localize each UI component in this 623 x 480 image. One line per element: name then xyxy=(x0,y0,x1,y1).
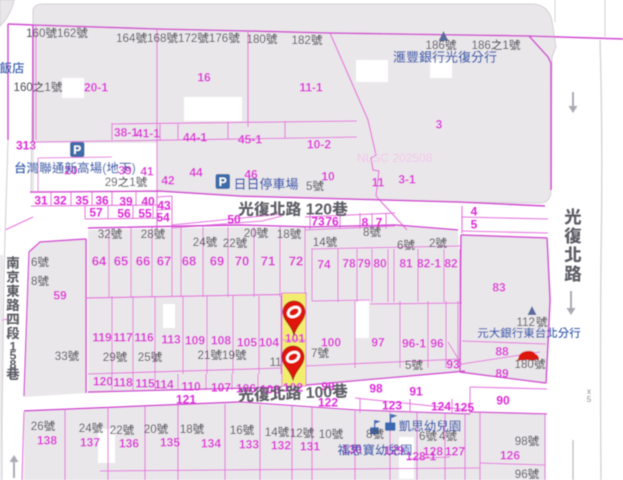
svg-text:96: 96 xyxy=(515,468,528,480)
svg-text:180: 180 xyxy=(515,358,534,371)
svg-text:90: 90 xyxy=(496,393,510,407)
svg-text:79: 79 xyxy=(357,256,371,270)
svg-text:32: 32 xyxy=(98,228,111,241)
svg-text:3: 3 xyxy=(436,117,443,131)
svg-text:91: 91 xyxy=(409,384,423,398)
svg-text:119: 119 xyxy=(92,330,112,344)
svg-text:11: 11 xyxy=(372,175,385,189)
svg-text:186: 186 xyxy=(472,39,491,52)
svg-text:100: 100 xyxy=(305,384,332,402)
svg-text:14: 14 xyxy=(265,426,278,439)
svg-text:162: 162 xyxy=(57,27,76,40)
svg-text:59: 59 xyxy=(53,288,67,302)
svg-text:56: 56 xyxy=(117,206,131,220)
svg-text:120: 120 xyxy=(93,374,113,388)
svg-text:4: 4 xyxy=(471,204,478,218)
svg-text:20: 20 xyxy=(144,423,157,436)
svg-text:1: 1 xyxy=(502,39,508,52)
svg-text:29: 29 xyxy=(105,176,118,189)
svg-text:33: 33 xyxy=(55,350,68,363)
svg-text:64: 64 xyxy=(92,254,107,269)
svg-text:12: 12 xyxy=(290,427,303,440)
svg-text:172: 172 xyxy=(178,32,197,45)
svg-text:81: 81 xyxy=(399,256,413,270)
svg-text:114: 114 xyxy=(154,377,174,391)
svg-text:20-1: 20-1 xyxy=(84,80,108,94)
svg-text:18: 18 xyxy=(277,228,290,241)
svg-text:11: 11 xyxy=(270,356,282,369)
svg-text:11-1: 11-1 xyxy=(299,80,323,94)
svg-text:29: 29 xyxy=(103,351,116,364)
svg-text:168: 168 xyxy=(147,32,166,45)
svg-text:24: 24 xyxy=(79,422,92,435)
svg-text:97: 97 xyxy=(371,335,385,349)
svg-text:44: 44 xyxy=(189,165,203,179)
svg-text:NLSC 202508: NLSC 202508 xyxy=(357,151,433,165)
svg-text:31: 31 xyxy=(34,193,48,207)
svg-text:313: 313 xyxy=(16,138,36,152)
svg-text:135: 135 xyxy=(160,435,180,449)
svg-text:69: 69 xyxy=(210,254,224,269)
svg-text:83: 83 xyxy=(492,280,506,294)
svg-text:5: 5 xyxy=(587,395,592,404)
svg-text:P: P xyxy=(219,175,227,189)
svg-text:): ) xyxy=(132,162,136,176)
svg-text:186: 186 xyxy=(426,39,445,52)
svg-text:132: 132 xyxy=(271,438,291,452)
svg-text:44-1: 44-1 xyxy=(183,130,207,144)
svg-text:22: 22 xyxy=(223,237,236,250)
svg-text:42: 42 xyxy=(161,173,175,187)
svg-text:138: 138 xyxy=(37,433,57,447)
svg-text:118: 118 xyxy=(113,375,133,389)
svg-text:1: 1 xyxy=(129,176,135,189)
svg-text:1: 1 xyxy=(44,81,50,94)
svg-text:164: 164 xyxy=(116,32,136,45)
svg-text:136: 136 xyxy=(119,436,139,450)
svg-text:71: 71 xyxy=(261,254,275,269)
svg-text:25: 25 xyxy=(138,351,151,364)
svg-text:3-1: 3-1 xyxy=(398,172,416,186)
svg-text:109: 109 xyxy=(185,333,205,347)
svg-text:19: 19 xyxy=(222,349,235,362)
svg-text:54: 54 xyxy=(156,210,170,224)
svg-text:35: 35 xyxy=(75,193,89,207)
svg-text:22: 22 xyxy=(110,424,123,437)
svg-text:2: 2 xyxy=(429,237,435,250)
svg-text:128-1: 128-1 xyxy=(406,449,437,463)
svg-text:80: 80 xyxy=(373,256,387,270)
svg-text:126: 126 xyxy=(500,448,520,462)
svg-text:100: 100 xyxy=(321,335,341,349)
svg-text:102: 102 xyxy=(283,380,303,394)
svg-text:8: 8 xyxy=(363,226,369,239)
svg-text:121: 121 xyxy=(176,392,196,406)
svg-text:21: 21 xyxy=(198,349,211,362)
svg-text:10: 10 xyxy=(321,169,335,183)
svg-text:10: 10 xyxy=(319,428,332,441)
svg-text:26: 26 xyxy=(31,420,44,433)
svg-text:32: 32 xyxy=(53,193,67,207)
svg-text:176: 176 xyxy=(209,32,228,45)
svg-text:16: 16 xyxy=(230,424,243,437)
svg-text:116: 116 xyxy=(134,330,154,344)
svg-text:7: 7 xyxy=(311,347,317,360)
svg-text:6: 6 xyxy=(31,256,37,269)
svg-text:82-1: 82-1 xyxy=(417,256,441,270)
svg-text:41-1: 41-1 xyxy=(136,126,160,140)
svg-text:104: 104 xyxy=(259,335,279,349)
svg-text:98: 98 xyxy=(515,435,528,448)
svg-text:93: 93 xyxy=(446,357,460,371)
svg-text:72: 72 xyxy=(289,254,303,269)
svg-text:65: 65 xyxy=(114,254,128,269)
svg-text:28: 28 xyxy=(141,228,154,241)
svg-text:182: 182 xyxy=(292,34,311,47)
svg-text:70: 70 xyxy=(235,254,249,269)
svg-text:89: 89 xyxy=(495,366,509,380)
svg-text:67: 67 xyxy=(157,254,171,269)
svg-text:16: 16 xyxy=(197,70,211,84)
svg-text:123: 123 xyxy=(382,398,402,412)
svg-text:45-1: 45-1 xyxy=(238,132,262,146)
svg-text:8: 8 xyxy=(366,428,372,441)
svg-text:113: 113 xyxy=(161,332,181,346)
svg-text:120: 120 xyxy=(306,202,333,219)
svg-text:38-1: 38-1 xyxy=(114,125,138,139)
svg-text:110: 110 xyxy=(181,379,201,393)
svg-text:5: 5 xyxy=(306,180,312,193)
svg-text:4: 4 xyxy=(439,430,446,443)
svg-text:96: 96 xyxy=(430,336,444,350)
svg-text:41: 41 xyxy=(140,164,154,178)
svg-text:180: 180 xyxy=(247,33,266,46)
svg-text:14: 14 xyxy=(313,236,326,249)
svg-text:P: P xyxy=(73,143,81,157)
svg-text:78: 78 xyxy=(342,256,356,270)
svg-text:112: 112 xyxy=(517,316,535,329)
svg-text:115: 115 xyxy=(135,376,155,390)
svg-text:82: 82 xyxy=(444,256,458,270)
svg-text:55: 55 xyxy=(138,206,152,220)
svg-text:6: 6 xyxy=(419,430,425,443)
svg-text:98: 98 xyxy=(369,381,383,395)
svg-text:160: 160 xyxy=(14,81,33,94)
svg-text:8: 8 xyxy=(31,275,37,288)
svg-text:133: 133 xyxy=(239,437,259,451)
svg-text:66: 66 xyxy=(136,254,150,269)
svg-text:108: 108 xyxy=(211,333,231,347)
svg-text:107: 107 xyxy=(211,380,231,394)
svg-text:131: 131 xyxy=(300,439,320,453)
svg-text:74: 74 xyxy=(317,257,331,271)
svg-text:160: 160 xyxy=(26,27,45,40)
svg-text:105: 105 xyxy=(237,335,257,349)
svg-text:88: 88 xyxy=(495,344,509,358)
svg-text:5: 5 xyxy=(471,217,478,231)
svg-text:18: 18 xyxy=(180,423,193,436)
svg-text:10-2: 10-2 xyxy=(307,137,331,151)
svg-text:24: 24 xyxy=(193,236,206,249)
svg-text:134: 134 xyxy=(201,436,221,450)
svg-text:5: 5 xyxy=(405,359,411,372)
svg-text:6: 6 xyxy=(397,239,403,252)
svg-text:117: 117 xyxy=(113,330,133,344)
svg-text:137: 137 xyxy=(80,435,100,449)
svg-text:101: 101 xyxy=(285,331,305,345)
svg-text:125: 125 xyxy=(454,400,474,414)
svg-text:96-1: 96-1 xyxy=(402,336,426,350)
svg-text:68: 68 xyxy=(182,254,196,269)
svg-text:127: 127 xyxy=(445,444,465,458)
svg-text:57: 57 xyxy=(89,205,103,219)
svg-text:124: 124 xyxy=(431,399,451,413)
